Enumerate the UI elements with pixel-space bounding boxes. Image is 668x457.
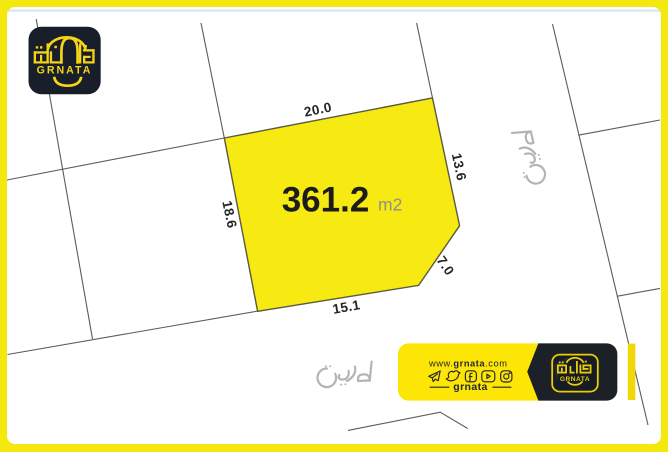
svg-text:GRNATA: GRNATA xyxy=(560,376,590,383)
svg-text:361.2: 361.2 xyxy=(282,181,370,220)
svg-text:GRNATA: GRNATA xyxy=(37,64,93,76)
svg-text:grnata: grnata xyxy=(453,381,488,393)
svg-text:m2: m2 xyxy=(378,195,402,215)
svg-text:www.grnata.com: www.grnata.com xyxy=(428,359,508,369)
